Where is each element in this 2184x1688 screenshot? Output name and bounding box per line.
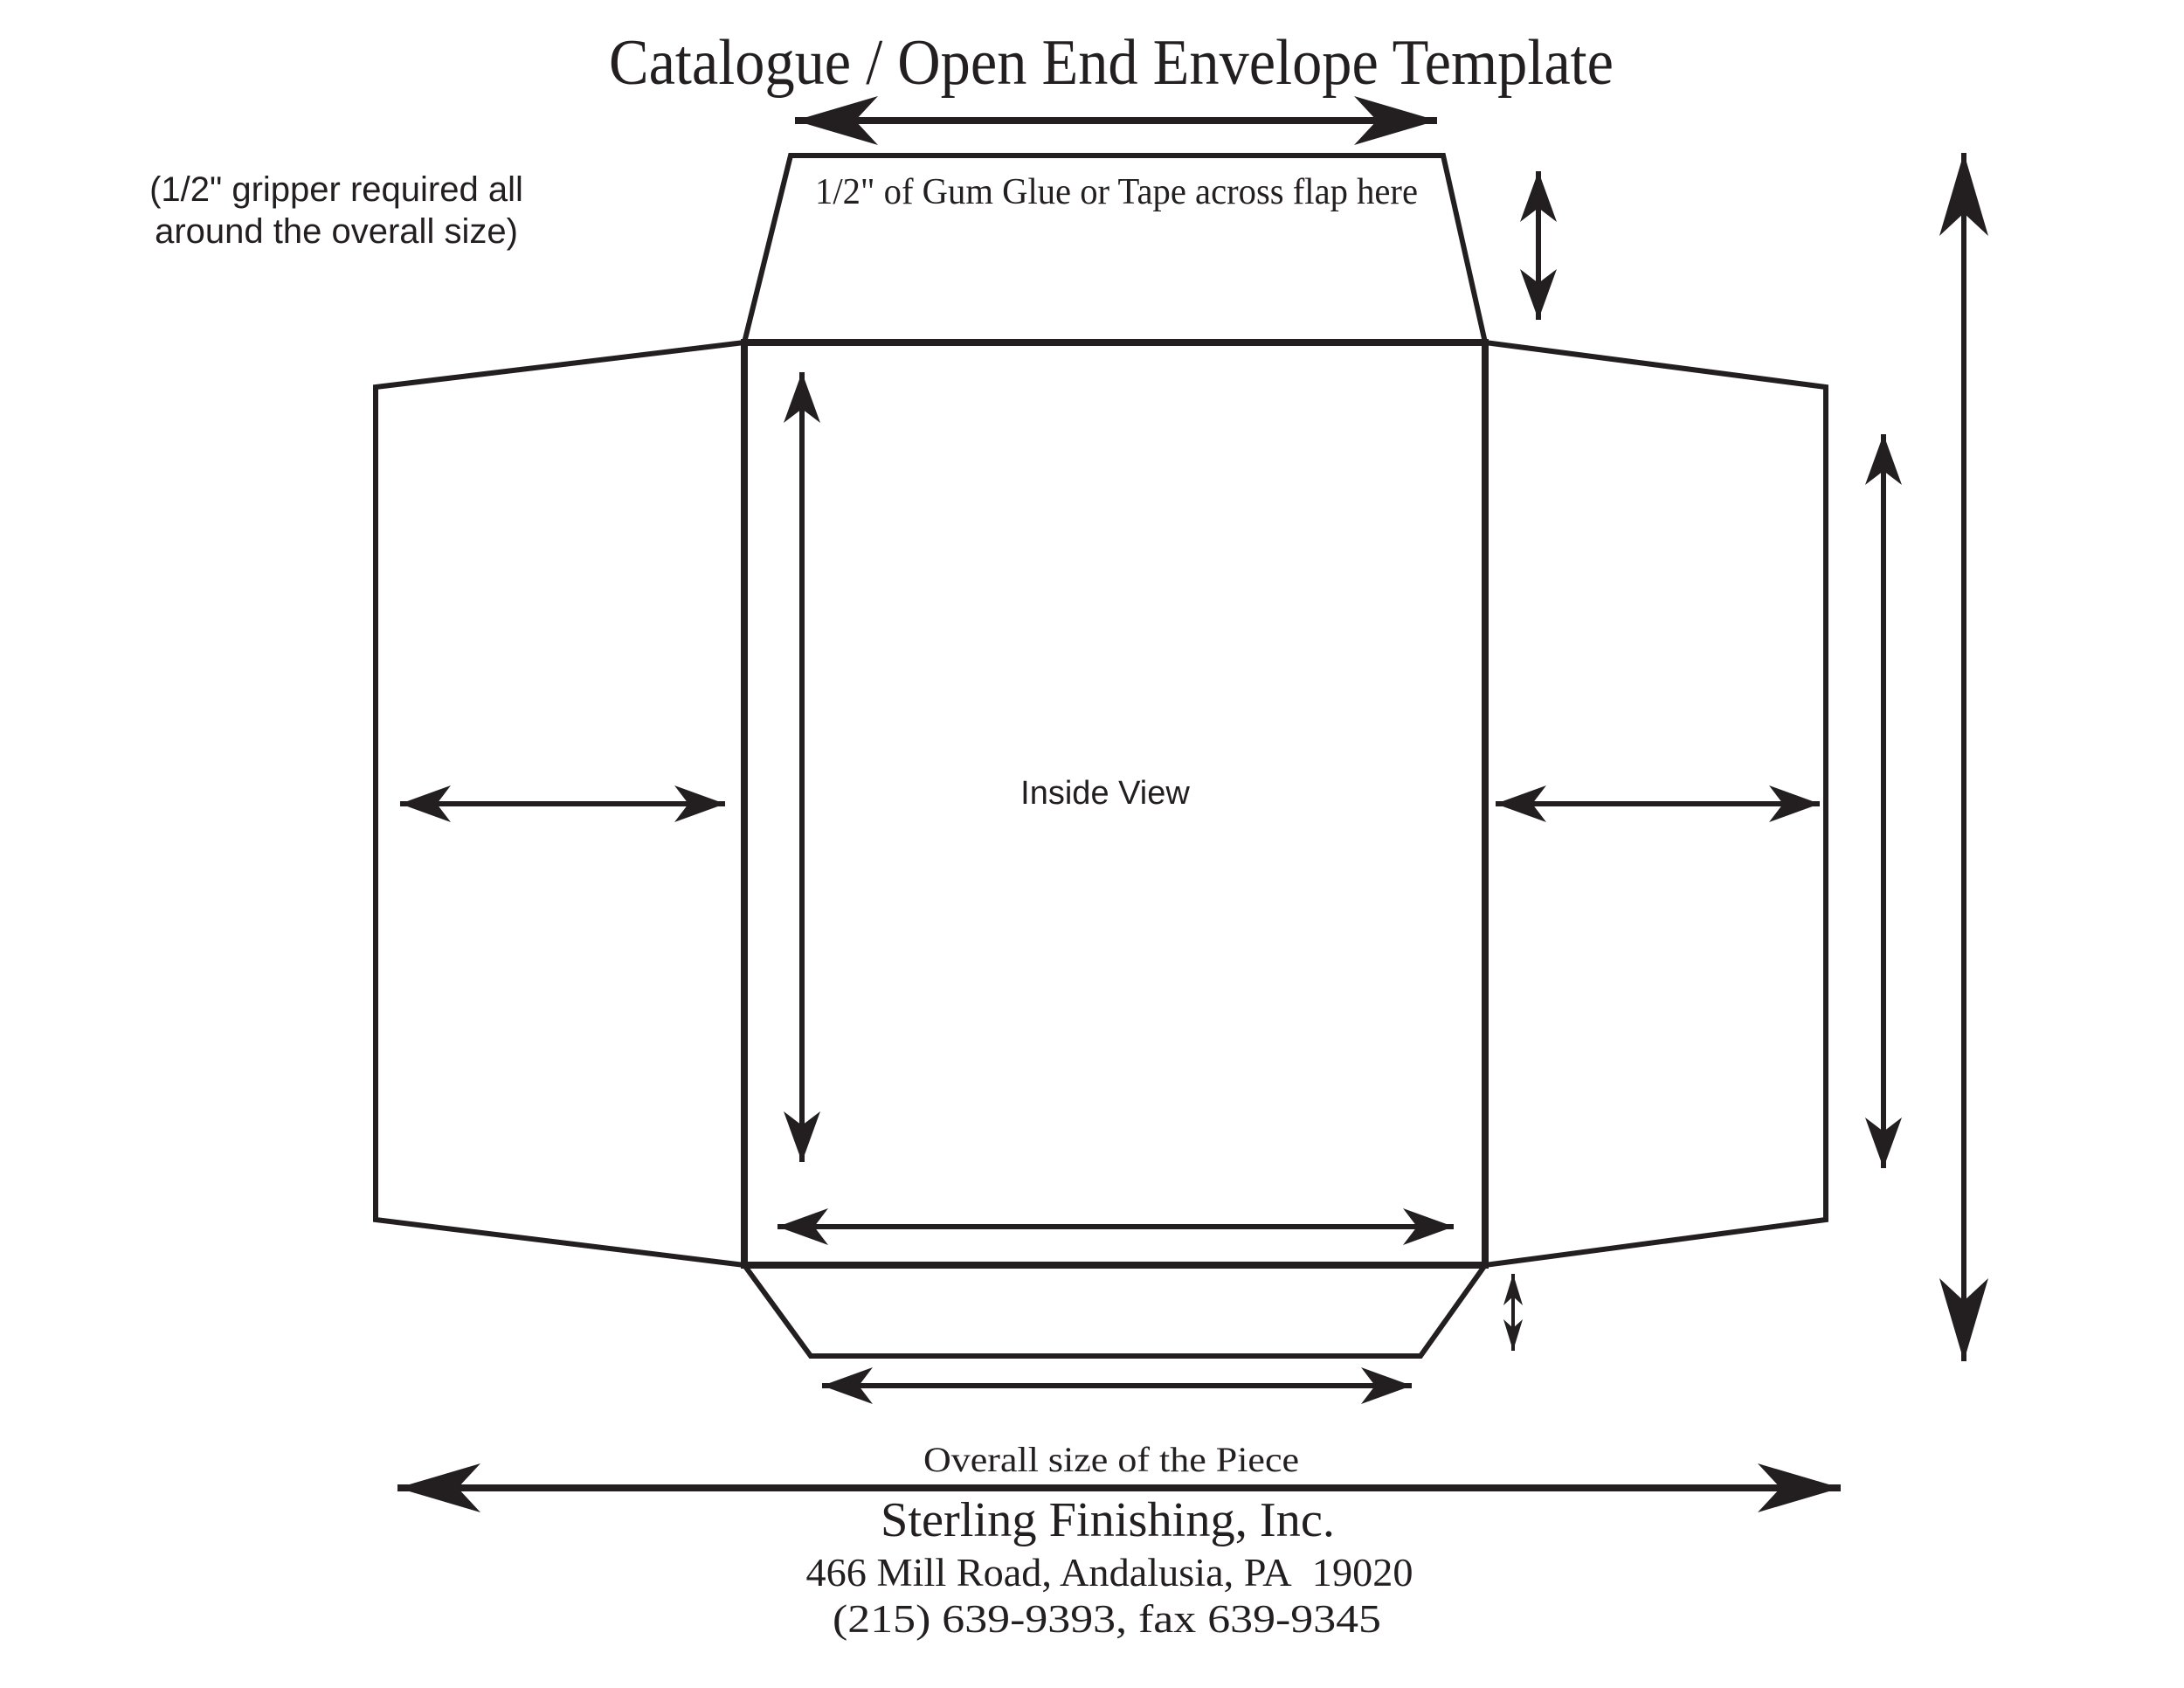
glue-flap-label: 1/2" of Gum Glue or Tape across flap her…	[815, 172, 1418, 212]
gripper-note-line2: around the overall size)	[155, 212, 518, 251]
company-address: 466 Mill Road, Andalusia, PA 19020	[806, 1551, 1413, 1595]
labels: Catalogue / Open End Envelope Template (…	[149, 27, 1614, 1479]
company-name: Sterling Finishing, Inc.	[881, 1493, 1335, 1547]
company-phone: (215) 639-9393, fax 639-9345	[833, 1597, 1381, 1641]
gripper-note-line1: (1/2" gripper required all	[149, 170, 523, 209]
envelope-outline	[376, 156, 1826, 1356]
template-drawing: Catalogue / Open End Envelope Template (…	[0, 0, 2184, 1688]
bottom-flap-panel	[744, 1265, 1485, 1356]
footer: Sterling Finishing, Inc. 466 Mill Road, …	[806, 1493, 1413, 1641]
overall-size-label: Overall size of the Piece	[923, 1440, 1299, 1479]
inside-view-label: Inside View	[1020, 775, 1190, 812]
envelope-template-page: Catalogue / Open End Envelope Template (…	[0, 0, 2184, 1688]
page-title: Catalogue / Open End Envelope Template	[609, 27, 1614, 99]
